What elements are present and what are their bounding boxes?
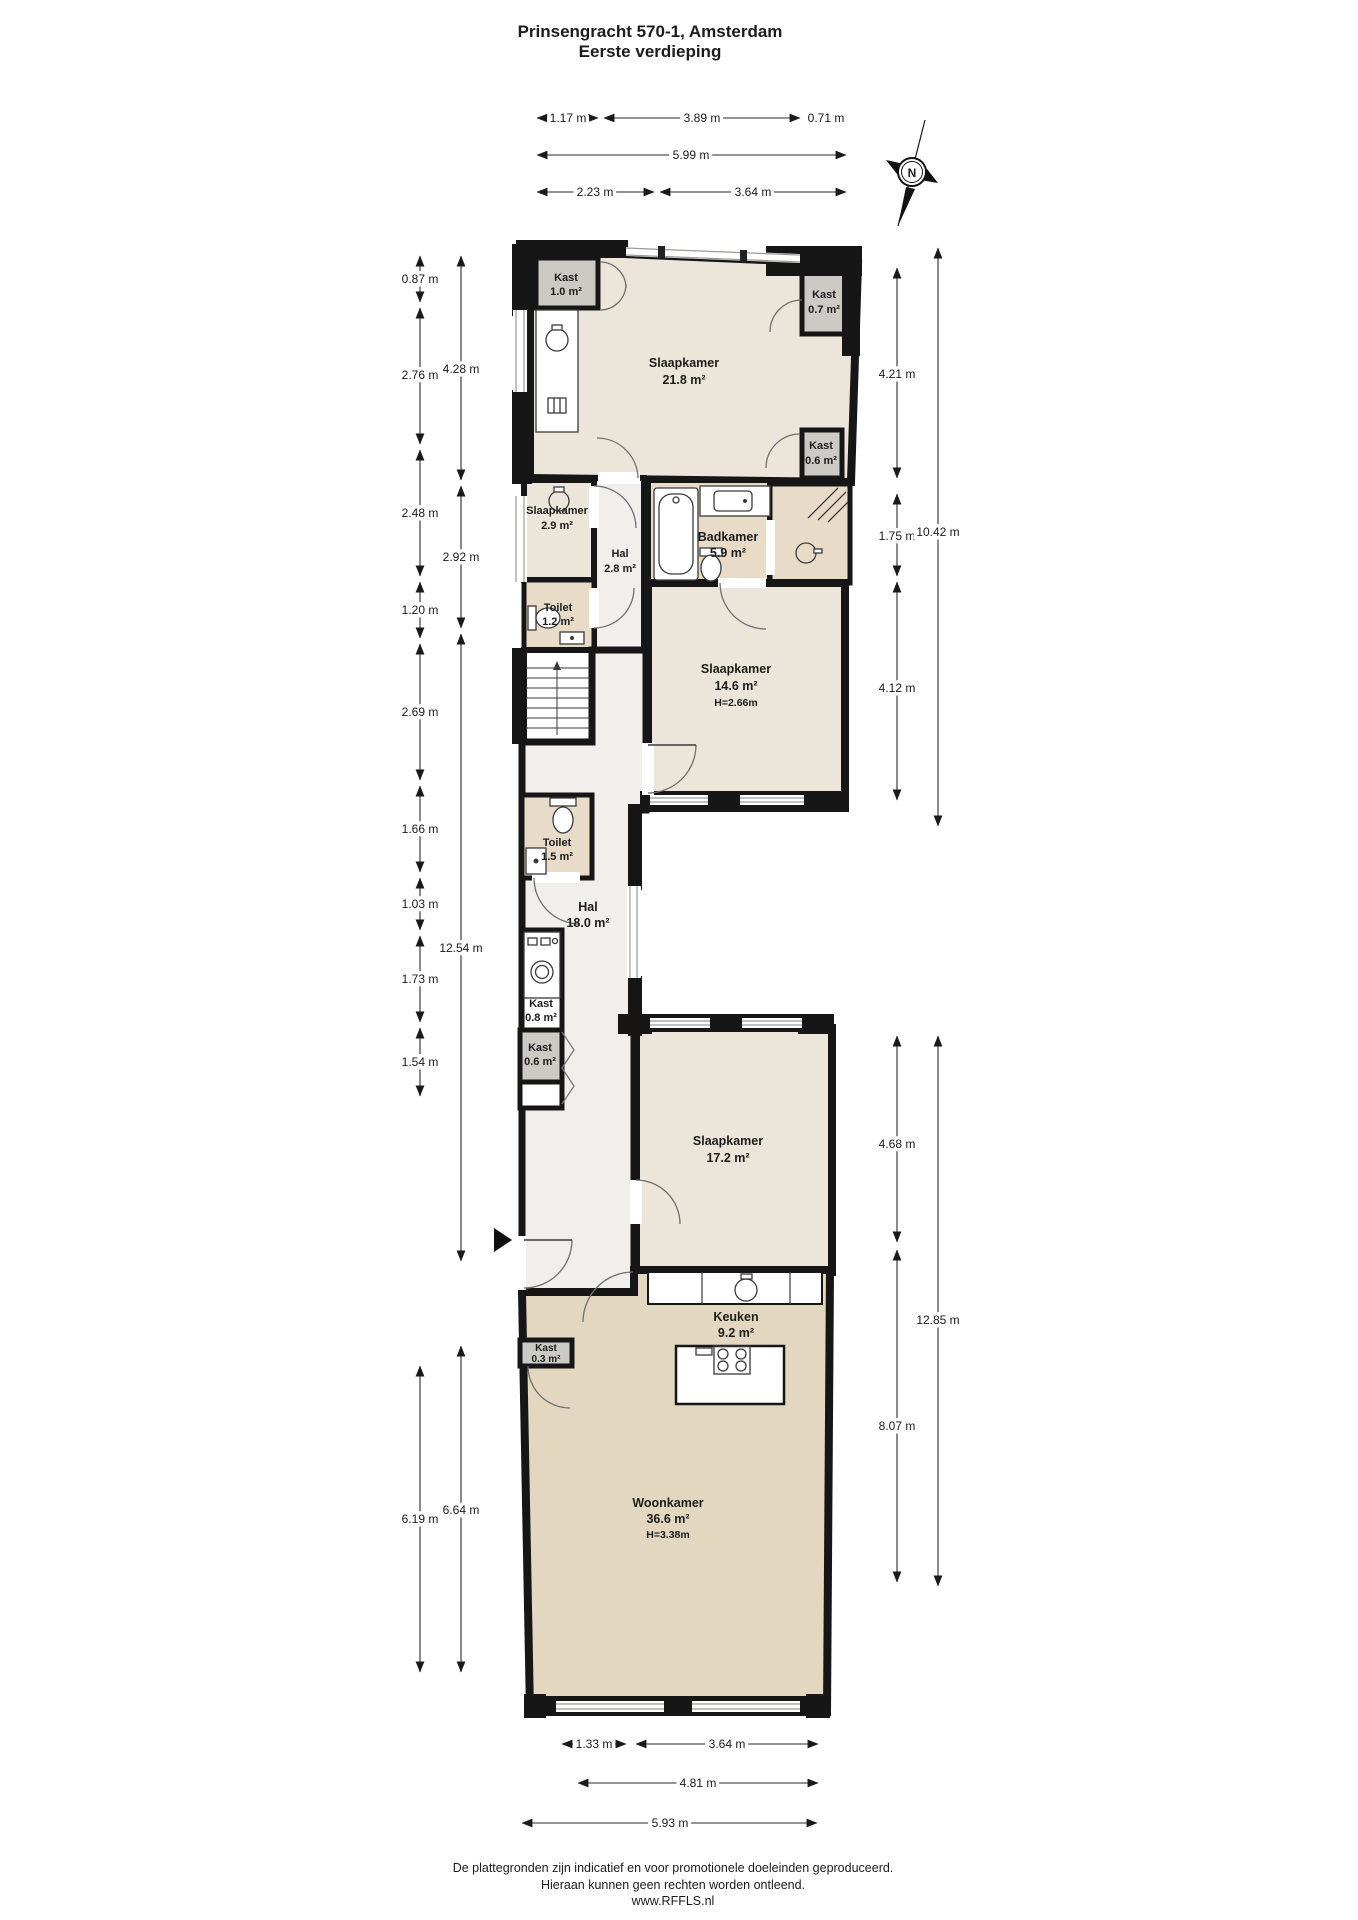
svg-text:2.8 m²: 2.8 m²	[604, 563, 636, 575]
svg-text:0.6 m²: 0.6 m²	[524, 1056, 556, 1068]
label-kast-0-8: Kast	[529, 998, 553, 1010]
svg-text:1.54 m: 1.54 m	[402, 1055, 439, 1069]
page-subtitle: Eerste verdieping	[579, 42, 722, 61]
room-kast-0-7	[802, 270, 846, 334]
svg-text:36.6 m²: 36.6 m²	[646, 1512, 689, 1526]
svg-text:12.85 m: 12.85 m	[916, 1313, 959, 1327]
window-slaapkamer-17-2-top	[636, 1014, 832, 1032]
svg-text:H=2.66m: H=2.66m	[714, 697, 758, 709]
svg-text:0.71 m: 0.71 m	[808, 111, 845, 125]
svg-text:17.2 m²: 17.2 m²	[706, 1151, 749, 1165]
svg-text:6.19 m: 6.19 m	[402, 1512, 439, 1526]
svg-text:6.64 m: 6.64 m	[443, 1503, 480, 1517]
svg-text:4.28 m: 4.28 m	[443, 362, 480, 376]
bathtub-icon	[654, 488, 698, 580]
footer-disclaimer-1: De plattegronden zijn indicatief en voor…	[453, 1861, 894, 1875]
dim-bottom: 1.33 m	[576, 1737, 613, 1751]
label-slaapkamer-14-6: Slaapkamer	[701, 662, 771, 676]
svg-text:10.42 m: 10.42 m	[916, 525, 959, 539]
svg-text:1.5 m²: 1.5 m²	[541, 851, 573, 863]
svg-text:0.8 m²: 0.8 m²	[525, 1012, 557, 1024]
washing-machine-icon	[524, 932, 560, 998]
svg-text:4.12 m: 4.12 m	[879, 681, 916, 695]
svg-text:0.7 m²: 0.7 m²	[808, 304, 840, 316]
page-title: Prinsengracht 570-1, Amsterdam	[518, 22, 783, 41]
compass-north-label: N	[908, 166, 917, 180]
label-keuken: Keuken	[713, 1310, 758, 1324]
room-kast-0-6-boven	[802, 430, 842, 478]
svg-text:1.2 m²: 1.2 m²	[542, 616, 574, 628]
window-left-upper	[513, 310, 527, 392]
label-slaapkamer-21-8: Slaapkamer	[649, 356, 719, 370]
svg-text:9.2 m²: 9.2 m²	[718, 1326, 754, 1340]
label-kast-1-0: Kast	[554, 272, 578, 284]
dim-left: 0.87 m	[402, 272, 439, 286]
room-kast-0-6-onder-ext	[520, 1082, 562, 1108]
dim-right: 4.21 m	[879, 367, 916, 381]
label-slaapkamer-2-9: Slaapkamer	[526, 505, 588, 517]
svg-text:5.93 m: 5.93 m	[652, 1816, 689, 1830]
window-hal-right	[627, 886, 641, 978]
footer-website: www.RFFLS.nl	[631, 1894, 715, 1908]
svg-text:1.66 m: 1.66 m	[402, 822, 439, 836]
label-kast-0-6-boven: Kast	[809, 440, 833, 452]
svg-text:2.23 m: 2.23 m	[577, 185, 614, 199]
svg-text:1.0 m²: 1.0 m²	[550, 286, 582, 298]
svg-text:5.99 m: 5.99 m	[673, 148, 710, 162]
svg-text:5.9 m²: 5.9 m²	[710, 546, 746, 560]
svg-text:2.92 m: 2.92 m	[443, 550, 480, 564]
svg-text:14.6 m²: 14.6 m²	[714, 679, 757, 693]
svg-text:1.03 m: 1.03 m	[402, 897, 439, 911]
svg-text:1.20 m: 1.20 m	[402, 603, 439, 617]
faucet-icon	[554, 487, 564, 492]
svg-text:3.89 m: 3.89 m	[684, 111, 721, 125]
floorplan-svg: Prinsengracht 570-1, Amsterdam Eerste ve…	[0, 0, 1358, 1920]
label-woonkamer: Woonkamer	[632, 1496, 703, 1510]
faucet-icon	[552, 325, 562, 330]
label-toilet-1-5: Toilet	[543, 837, 572, 849]
window-bottom	[524, 1696, 830, 1716]
room-badkamer-douche	[770, 484, 850, 583]
svg-text:3.64 m: 3.64 m	[735, 185, 772, 199]
window-left-slaapkamer-2-9	[513, 496, 527, 582]
entrance-arrow-icon	[494, 1228, 512, 1252]
label-toilet-1-2: Toilet	[544, 602, 573, 614]
dim-top: 1.17 m	[550, 111, 587, 125]
label-badkamer: Badkamer	[698, 530, 759, 544]
svg-text:4.68 m: 4.68 m	[879, 1137, 916, 1151]
room-slaapkamer-14-6	[648, 583, 845, 808]
svg-text:0.3 m²: 0.3 m²	[532, 1354, 562, 1365]
svg-text:12.54 m: 12.54 m	[439, 941, 482, 955]
kitchen-island	[676, 1346, 784, 1404]
label-kast-0-3: Kast	[535, 1343, 557, 1354]
svg-text:2.69 m: 2.69 m	[402, 705, 439, 719]
svg-text:3.64 m: 3.64 m	[709, 1737, 746, 1751]
svg-text:1.73 m: 1.73 m	[402, 972, 439, 986]
svg-text:2.76 m: 2.76 m	[402, 368, 439, 382]
svg-text:18.0 m²: 18.0 m²	[566, 916, 609, 930]
room-slaapkamer-17-2	[636, 1028, 832, 1272]
svg-text:1.75 m: 1.75 m	[879, 529, 916, 543]
faucet-icon	[814, 549, 822, 553]
kitchen-counter	[648, 1272, 822, 1304]
svg-text:8.07 m: 8.07 m	[879, 1419, 916, 1433]
floorplan-page: Prinsengracht 570-1, Amsterdam Eerste ve…	[0, 0, 1358, 1920]
compass-icon: N	[886, 120, 938, 226]
svg-text:4.81 m: 4.81 m	[680, 1776, 717, 1790]
washbasin-icon	[700, 486, 770, 516]
label-kast-0-7: Kast	[812, 289, 836, 301]
label-kast-0-6-onder: Kast	[528, 1042, 552, 1054]
window-slaapkamer-14-6-bottom	[640, 791, 846, 809]
faucet-icon	[741, 1274, 752, 1279]
svg-text:2.48 m: 2.48 m	[402, 506, 439, 520]
rooms-layer	[520, 250, 858, 1712]
label-hal-18-0: Hal	[578, 900, 597, 914]
svg-text:0.6 m²: 0.6 m²	[805, 455, 837, 467]
svg-text:H=3.38m: H=3.38m	[646, 1529, 690, 1541]
footer-disclaimer-2: Hieraan kunnen geen rechten worden ontle…	[541, 1878, 805, 1892]
svg-text:21.8 m²: 21.8 m²	[662, 373, 705, 387]
label-slaapkamer-17-2: Slaapkamer	[693, 1134, 763, 1148]
room-woonkamer-keuken	[522, 1270, 830, 1712]
svg-text:2.9 m²: 2.9 m²	[541, 520, 573, 532]
label-hal-2-8: Hal	[611, 548, 628, 560]
